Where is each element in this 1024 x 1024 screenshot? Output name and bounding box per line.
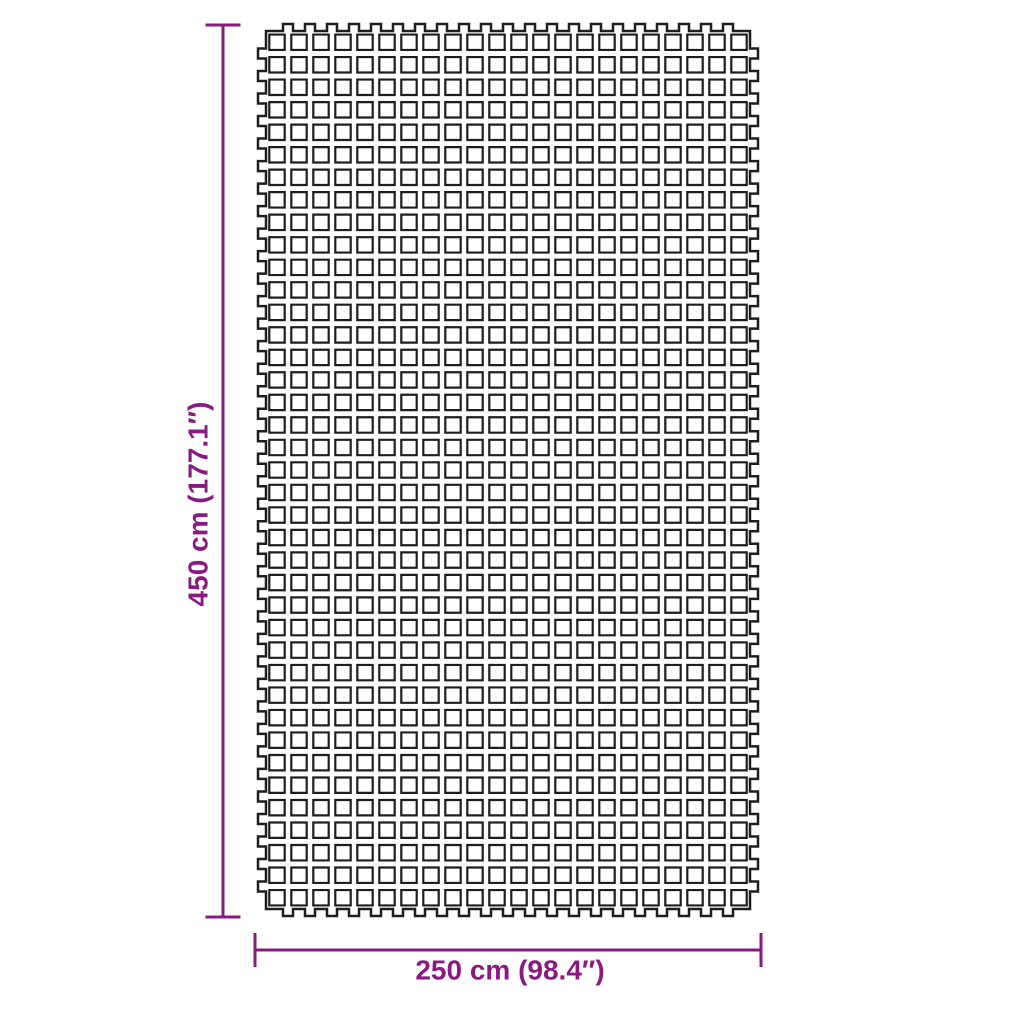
mat-grid-squares: [269, 35, 746, 906]
height-dimension-label: 450 cm (177.1″): [183, 402, 214, 607]
product-diagram: 450 cm (177.1″) 250 cm (98.4″): [0, 0, 1024, 1024]
width-dimension: 250 cm (98.4″): [255, 933, 761, 986]
mat-outline: [258, 24, 758, 916]
height-dimension: 450 cm (177.1″): [183, 25, 241, 917]
diagram-canvas: 450 cm (177.1″) 250 cm (98.4″): [0, 0, 1024, 1024]
mat: [258, 24, 758, 916]
width-dimension-label: 250 cm (98.4″): [415, 955, 604, 986]
